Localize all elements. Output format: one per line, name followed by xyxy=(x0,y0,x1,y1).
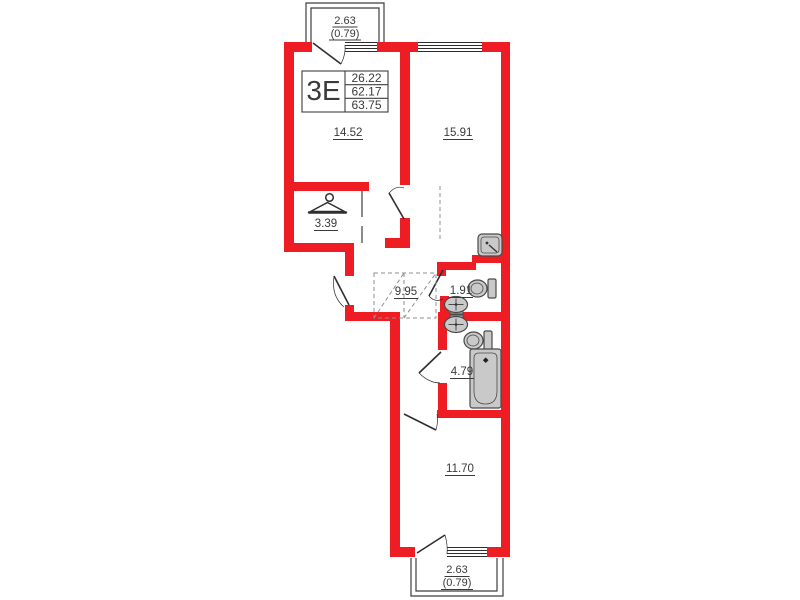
hanger-icon xyxy=(309,194,346,213)
door-icon-entrance xyxy=(333,276,349,307)
balcony-bottom-reduced-area: (0.79) xyxy=(443,577,472,589)
door-icon-balcony-bottom xyxy=(417,535,447,554)
door-icon-room-bottom xyxy=(404,414,438,430)
balcony-bottom-area: 2.63 xyxy=(446,564,467,576)
area-label-room-top-left: 14.52 xyxy=(334,127,363,139)
area-label-bathroom: 4.79 xyxy=(451,366,473,378)
area-label-corridor: 9.95 xyxy=(395,286,417,298)
area-label-kitchen-living: 15.91 xyxy=(444,127,473,139)
bathtub-icon xyxy=(470,349,501,408)
floor-plan-page: 3Е 26.22 62.17 63.75 14.52 15.91 3.39 9.… xyxy=(0,0,800,600)
door-icon-room-top-left xyxy=(389,187,404,219)
balcony-top-reduced-area: (0.79) xyxy=(331,28,360,40)
area-label-wardrobe: 3.39 xyxy=(315,218,337,230)
unit-info-table: 3Е 26.22 62.17 63.75 xyxy=(302,71,388,112)
unit-area-value-2: 62.17 xyxy=(351,84,381,98)
unit-area-value-1: 26.22 xyxy=(351,71,381,85)
unit-type-label: 3Е xyxy=(306,75,340,106)
wall-segments xyxy=(284,42,510,557)
toilet-icon-bathroom xyxy=(464,331,492,350)
area-label-wc: 1.91 xyxy=(450,285,472,297)
window-icon-bottom xyxy=(447,548,487,557)
balcony-top-area: 2.63 xyxy=(334,15,355,27)
door-icon-bathroom xyxy=(419,352,441,383)
floor-plan: 3Е 26.22 62.17 63.75 14.52 15.91 3.39 9.… xyxy=(0,0,800,600)
kitchen-sink-icon xyxy=(478,234,502,256)
balcony-top-labels: 2.63 (0.79) xyxy=(329,15,361,40)
balcony-bottom-labels: 2.63 (0.79) xyxy=(441,564,473,590)
area-label-room-bottom: 11.70 xyxy=(446,463,474,475)
window-icon-top-right xyxy=(418,43,482,52)
window-icon-top-left xyxy=(345,43,377,52)
door-icon-balcony-top xyxy=(313,43,345,64)
unit-area-value-3: 63.75 xyxy=(351,98,381,112)
